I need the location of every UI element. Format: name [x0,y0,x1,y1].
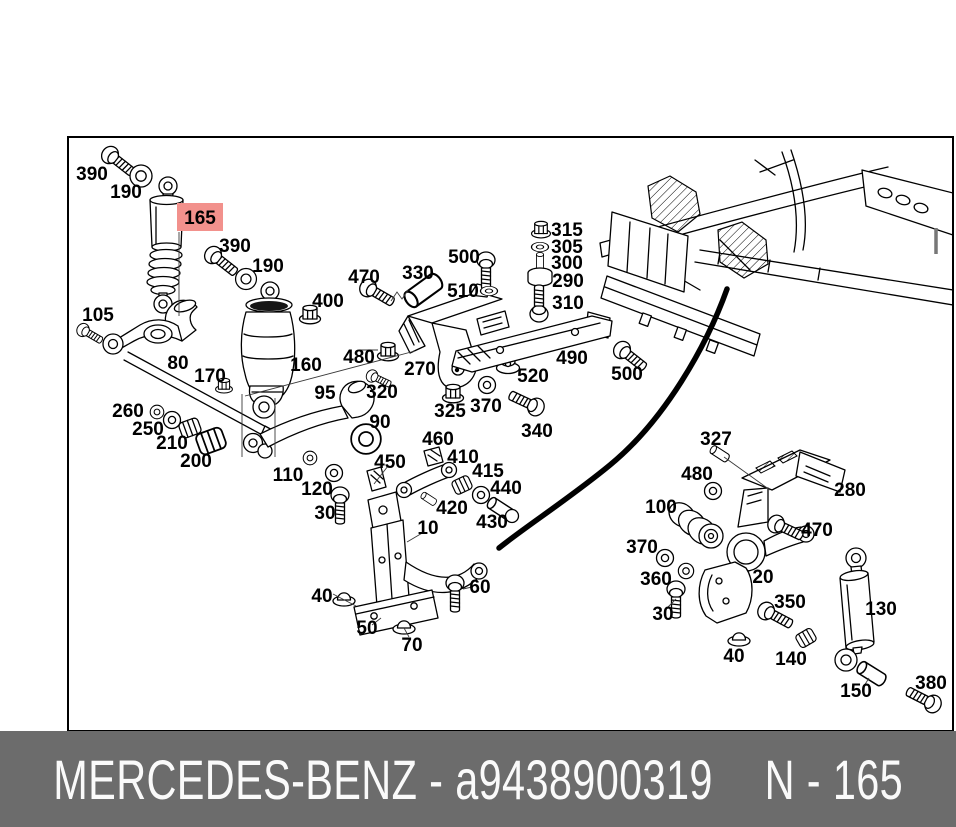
part-label-470-53: 470 [801,520,833,541]
part-label-450-37: 450 [374,452,406,473]
part-label-100-52: 100 [645,497,677,518]
washer-260 [150,405,164,419]
part-label-350-58: 350 [774,592,806,613]
buffer-290 [528,268,552,286]
part-label-327-49: 327 [700,429,732,450]
part-label-200-32: 200 [180,451,212,472]
part-label-40-60: 40 [723,646,744,667]
part-label-90-33: 90 [369,412,390,433]
part-label-380-63: 380 [915,673,947,694]
washer-305 [532,242,549,251]
washer-110 [303,451,317,465]
part-label-290-13: 290 [552,271,584,292]
part-label-390-3: 390 [219,236,251,257]
part-label-120-35: 120 [301,479,333,500]
part-label-20-57: 20 [752,567,773,588]
washer-440 [473,487,490,504]
part-label-105-15: 105 [82,305,114,326]
part-label-420-42: 420 [436,498,468,519]
part-label-470-6: 470 [348,267,380,288]
part-label-340-28: 340 [521,421,553,442]
part-label-70-48: 70 [401,635,422,656]
part-label-270-20: 270 [404,359,436,380]
part-label-140-61: 140 [775,649,807,670]
part-label-320-21: 320 [366,382,398,403]
part-label-95-22: 95 [314,383,336,404]
footer-brand-partnumber: MERCEDES-BENZ - a9438900319 [53,747,713,812]
part-label-170-17: 170 [194,366,226,387]
part-label-310-14: 310 [552,293,584,314]
part-label-490-26: 490 [556,348,588,369]
exploded-parts-diagram: 3901901653901904004703305005103153053002… [0,0,956,732]
part-label-480-50: 480 [681,464,713,485]
part-label-510-9: 510 [447,281,479,302]
part-label-325-23: 325 [434,401,466,422]
footer-bar: MERCEDES-BENZ - a9438900319 N - 165 [0,731,956,827]
part-label-390-0: 390 [76,164,108,185]
part-label-80-16: 80 [167,353,188,374]
part-label-430-43: 430 [476,512,508,533]
washer-250 [164,412,181,429]
part-label-50-46: 50 [356,618,377,639]
part-label-500-27: 500 [611,364,643,385]
part-label-30-56: 30 [652,604,673,625]
part-label-440-41: 440 [490,478,522,499]
footer-page-ref: N - 165 [764,747,902,812]
part-label-60-47: 60 [469,577,490,598]
part-label-520-25: 520 [517,366,549,387]
part-label-30-36: 30 [314,503,335,524]
washer-510 [481,286,498,295]
part-label-360-55: 360 [640,569,672,590]
part-label-160-18: 160 [290,355,322,376]
footer-text: MERCEDES-BENZ - a9438900319 N - 165 [53,747,903,812]
parts-diagram-page: 3901901653901904004703305005103153053002… [0,0,956,827]
washer-370-centre [479,377,496,394]
part-label-110-34: 110 [273,465,304,486]
part-label-500-8: 500 [448,247,480,268]
part-label-480-19: 480 [343,347,375,368]
spacer-300 [536,252,543,269]
part-label-190-1: 190 [110,182,142,203]
part-label-400-5: 400 [312,291,344,312]
part-label-130-59: 130 [865,599,897,620]
part-label-190-4: 190 [252,256,284,277]
nut-315 [532,221,551,238]
part-label-150-62: 150 [840,681,872,702]
clamp-bracket-20-drawing [699,562,752,623]
washer-360 [678,563,693,578]
part-label-330-7: 330 [402,263,434,284]
part-label-165-2: 165 [184,208,216,229]
washer-370-right [657,550,674,567]
part-label-280-51: 280 [834,480,866,501]
part-label-370-54: 370 [626,537,658,558]
part-label-40-45: 40 [311,586,332,607]
washer-480-right [705,483,722,500]
part-label-370-24: 370 [470,396,502,417]
part-label-10-44: 10 [417,518,438,539]
